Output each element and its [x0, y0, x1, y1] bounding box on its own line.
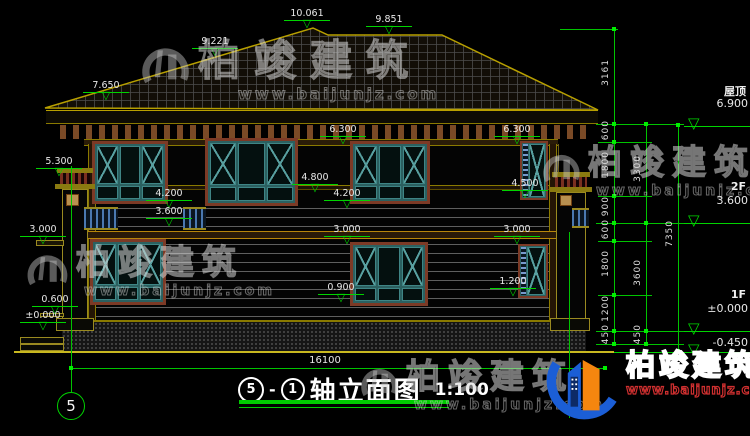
- axis-line-5: [71, 166, 72, 392]
- window-pane: [95, 287, 116, 300]
- level-marker-icon: ▽: [320, 135, 366, 145]
- chimney-base-right: [550, 318, 590, 331]
- elevation-mark-6300-a: 6.300▽: [320, 124, 366, 145]
- level-marker-icon: ▽: [83, 91, 129, 101]
- dim-tick: [676, 123, 680, 127]
- level-marker-icon: ▽: [146, 217, 192, 227]
- level-marker-icon: ▽: [688, 213, 700, 227]
- brand-logo: 柏竣建筑 www.baijunjz.com: [536, 348, 750, 428]
- window-pane: [140, 244, 161, 285]
- dim-value: 450: [601, 324, 611, 344]
- title-axis-start-bubble: 5: [238, 377, 264, 403]
- elevation-mark-4200-b: 4.200▽: [324, 188, 370, 209]
- elevation-mark-6300-b: 6.300▽: [494, 124, 540, 145]
- window-pane: [238, 143, 264, 185]
- level-marker-icon: ▽: [192, 47, 238, 57]
- title-separator: -: [269, 380, 276, 399]
- window-pane: [379, 186, 401, 199]
- dim-value: 3300: [633, 155, 643, 182]
- window-pane: [118, 244, 139, 285]
- elevation-mark-4500: 4.500▽: [502, 178, 548, 199]
- window-pane: [379, 146, 401, 184]
- window-pane: [402, 247, 423, 286]
- dim-tick: [644, 122, 648, 126]
- dim-tick: [612, 140, 616, 144]
- window-pane: [210, 143, 236, 185]
- elevation-drawing-canvas: 10.061▽ 9.851▽ 9.221▽ 7.650▽ 6.300▽ 6.30…: [0, 0, 750, 436]
- window-1f-left: [90, 239, 166, 305]
- dim-value: 1200: [601, 295, 611, 322]
- dim-tick: [612, 293, 616, 297]
- dim-value: 450: [633, 324, 643, 344]
- window-pane: [355, 247, 376, 286]
- dim-value: 900: [601, 196, 611, 216]
- window-pane: [210, 187, 236, 201]
- dim-value: 600: [601, 120, 611, 140]
- level-marker-icon: ▽: [36, 167, 82, 177]
- level-marker-icon: ▽: [324, 235, 370, 245]
- ground-line: [14, 351, 614, 353]
- level-name: 2F: [731, 180, 746, 193]
- elevation-mark-5300: 5.300▽: [36, 156, 82, 177]
- window-pane: [120, 146, 141, 184]
- dim-tick: [612, 27, 616, 31]
- level-marker-icon: ▽: [494, 135, 540, 145]
- elevation-mark-3000-a: 3.000▽: [20, 224, 66, 245]
- level-line: [684, 126, 750, 127]
- level-line: [684, 223, 750, 224]
- window-pane: [378, 288, 399, 301]
- level-value: 6.900: [717, 97, 749, 110]
- level-roof: 屋顶 6.900 ▽: [684, 83, 750, 127]
- level-value: 3.600: [717, 194, 749, 207]
- dim-tick: [612, 122, 616, 126]
- chimney-cap-bottom-left: [55, 184, 95, 189]
- title-underline-thick: [239, 400, 449, 404]
- window-2f-middle: [205, 138, 298, 206]
- level-marker-icon: ▽: [490, 287, 536, 297]
- window-pane: [120, 186, 141, 199]
- title-axis-end-bubble: 1: [281, 378, 305, 402]
- window-pane: [403, 186, 425, 199]
- dim-value: 3161: [601, 59, 611, 86]
- level-marker-icon: ▽: [20, 321, 66, 331]
- overall-dim-line: [71, 368, 606, 369]
- axis-bubble-5: 5: [57, 392, 85, 420]
- dim-tick: [69, 366, 73, 370]
- chimney-balusters-right: [555, 177, 587, 187]
- entry-step-lower: [20, 344, 64, 351]
- window-pane: [118, 287, 139, 300]
- dim-value: 1800: [601, 250, 611, 277]
- elevation-mark-9851: 9.851▽: [366, 14, 412, 35]
- dim-value: 600: [601, 219, 611, 239]
- elevation-mark-0900: 0.900▽: [318, 282, 364, 303]
- level-marker-icon: ▽: [324, 199, 370, 209]
- window-pane: [238, 187, 264, 201]
- brand-logo-text: 柏竣建筑: [626, 348, 750, 383]
- elevation-mark-3000-c: 3.000▽: [494, 224, 540, 245]
- dim-ext-line: [598, 241, 652, 242]
- dim-tick: [612, 239, 616, 243]
- dim-value: 3600: [633, 259, 643, 286]
- window-pane: [95, 244, 116, 285]
- dim-chain-line-2: [646, 124, 647, 344]
- title-underline-thin: [239, 407, 449, 408]
- eave-fascia: [46, 110, 598, 124]
- dim-ext-line: [560, 29, 618, 30]
- window-pane: [403, 146, 425, 184]
- overall-dimension-value: 16100: [295, 355, 355, 366]
- level-marker-icon: ▽: [20, 235, 66, 245]
- window-pane: [267, 187, 293, 201]
- stone-plinth: [62, 320, 586, 351]
- dim-value: 1800: [601, 151, 611, 178]
- elevation-mark-1200: 1.200▽: [490, 276, 536, 297]
- entry-step-upper: [20, 337, 64, 344]
- level-value: ±0.000: [707, 302, 748, 315]
- dim-ext-line: [598, 142, 652, 143]
- level-2f: 2F 3.600 ▽: [684, 180, 750, 224]
- level-marker-icon: ▽: [366, 25, 412, 35]
- window-pane: [97, 146, 118, 184]
- chimney-ornament-right: [560, 195, 572, 206]
- dim-value: 7350: [665, 220, 675, 247]
- window-pane: [402, 288, 423, 301]
- dim-tick: [612, 221, 616, 225]
- balcony-railing-left: [84, 207, 118, 230]
- second-floor-band: [88, 231, 557, 239]
- window-pane: [97, 186, 118, 199]
- level-marker-icon: ▽: [494, 235, 540, 245]
- window-pane: [378, 247, 399, 286]
- watermark-brand: 柏竣建筑: [588, 146, 750, 180]
- chimney-cap-bottom-right: [550, 187, 592, 192]
- window-pane: [142, 146, 163, 184]
- brand-logo-url: www.baijunjz.com: [626, 383, 750, 398]
- window-pane: [355, 146, 377, 184]
- dim-tick: [644, 221, 648, 225]
- title-scale: 1:100: [435, 380, 489, 400]
- level-name: 1F: [731, 288, 746, 301]
- elevation-mark-0000-left: ±0.000▽: [20, 310, 66, 331]
- level-marker-icon: ▽: [502, 189, 548, 199]
- elevation-mark-10061: 10.061▽: [284, 8, 330, 29]
- level-marker-icon: ▽: [688, 116, 700, 130]
- elevation-mark-3600: 3.600▽: [146, 206, 192, 227]
- axis-number: 5: [66, 397, 76, 415]
- elevation-mark-3000-b: 3.000▽: [324, 224, 370, 245]
- level-marker-icon: ▽: [284, 19, 330, 29]
- vent-grille-right: [572, 208, 589, 228]
- chimney-ornament-left: [66, 194, 79, 206]
- window-pane: [140, 287, 161, 300]
- level-marker-icon: ▽: [318, 293, 364, 303]
- elevation-mark-7650: 7.650▽: [83, 80, 129, 101]
- dim-chain-line-3: [678, 125, 679, 351]
- brand-logo-icon: [536, 348, 622, 428]
- elevation-mark-9221: 9.221▽: [192, 36, 238, 57]
- dim-tick: [612, 194, 616, 198]
- window-pane: [267, 143, 293, 185]
